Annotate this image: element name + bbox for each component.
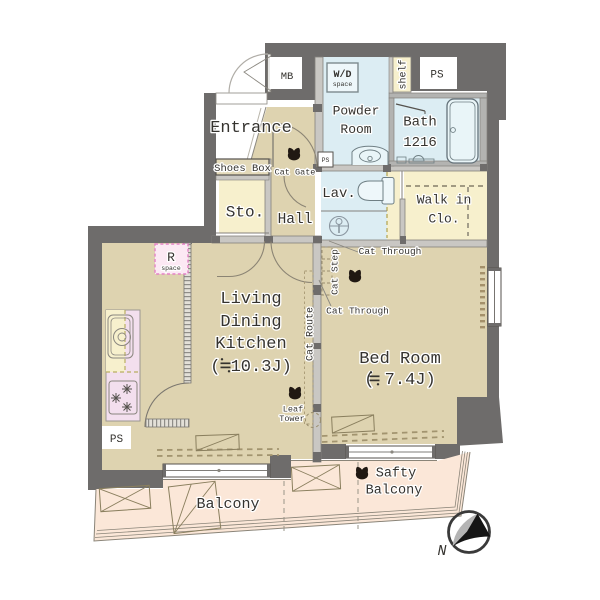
svg-text:Cat Step: Cat Step xyxy=(330,249,341,295)
svg-text:Cat Gate: Cat Gate xyxy=(275,168,316,178)
svg-text:Tower: Tower xyxy=(279,414,305,424)
svg-text:Safty: Safty xyxy=(376,467,417,482)
svg-text:PS: PS xyxy=(430,70,444,82)
svg-text:Bath: Bath xyxy=(403,115,437,131)
svg-text:Leaf: Leaf xyxy=(283,405,303,415)
svg-text:shelf: shelf xyxy=(398,59,410,89)
svg-text:Sto.: Sto. xyxy=(226,204,264,222)
svg-text:W/D: W/D xyxy=(333,69,351,81)
svg-text:Dining: Dining xyxy=(220,313,281,332)
svg-text:space: space xyxy=(333,81,353,88)
svg-text:N: N xyxy=(437,543,446,560)
svg-text:PS: PS xyxy=(110,434,124,446)
svg-text:Cat Route: Cat Route xyxy=(306,307,317,361)
svg-text:Living: Living xyxy=(220,290,281,309)
svg-text:Room: Room xyxy=(340,122,371,137)
svg-text:Cat Through: Cat Through xyxy=(326,306,389,317)
svg-text:Kitchen: Kitchen xyxy=(215,335,286,354)
svg-text:Hall: Hall xyxy=(278,212,313,228)
svg-text:Clo.: Clo. xyxy=(428,212,459,227)
svg-text:Balcony: Balcony xyxy=(196,496,259,513)
svg-text:1216: 1216 xyxy=(403,135,437,151)
svg-text:MB: MB xyxy=(281,71,294,83)
svg-text:Shoes Box: Shoes Box xyxy=(214,163,271,175)
svg-text:Powder: Powder xyxy=(333,104,380,119)
svg-text:space: space xyxy=(161,265,181,272)
svg-text:Cat Through: Cat Through xyxy=(359,246,422,257)
svg-text:Lav.: Lav. xyxy=(322,186,356,202)
svg-text:PS: PS xyxy=(322,157,330,164)
svg-text:Bed Room: Bed Room xyxy=(359,350,441,369)
svg-text:R: R xyxy=(167,250,175,265)
svg-text:Entrance: Entrance xyxy=(210,119,292,138)
svg-text:Balcony: Balcony xyxy=(366,484,423,499)
svg-text:Walk in: Walk in xyxy=(417,193,472,208)
